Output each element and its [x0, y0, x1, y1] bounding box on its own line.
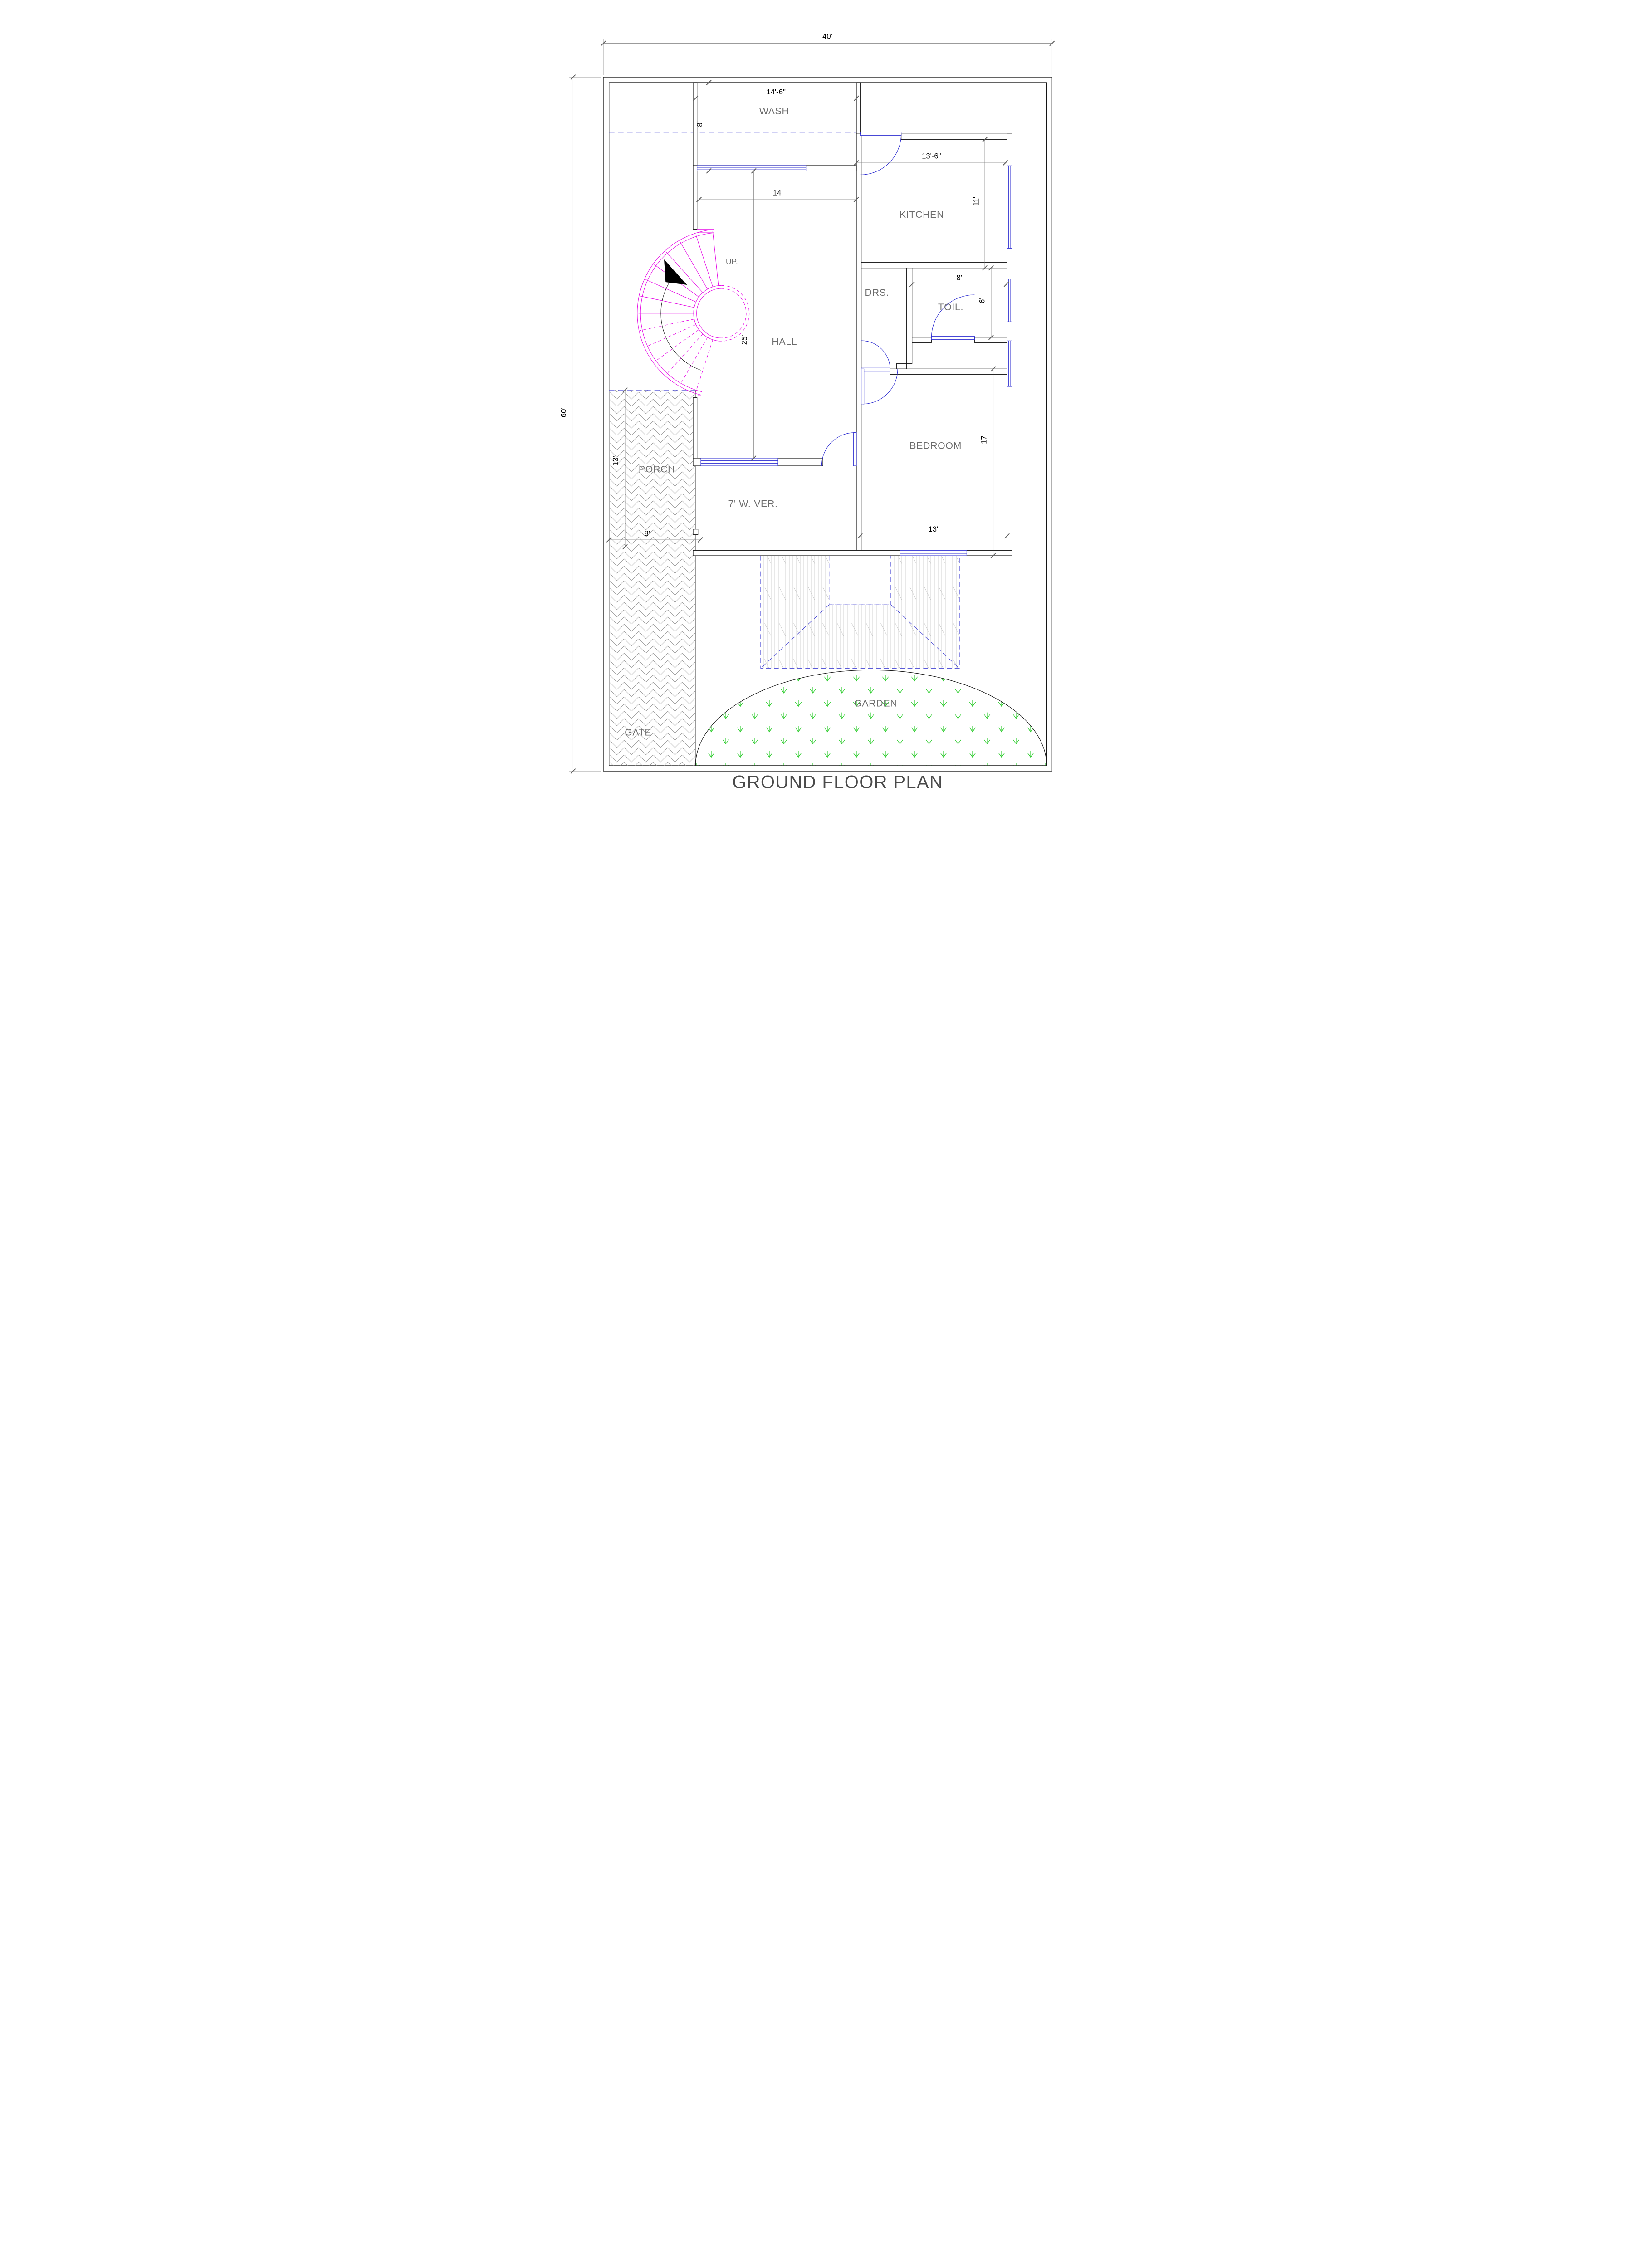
doors	[821, 132, 974, 466]
garden-area	[695, 670, 1046, 766]
window-hall-bottom	[701, 458, 778, 466]
dim-kitchen-depth: 11'	[972, 197, 980, 206]
dim-hall-width: 14'	[773, 189, 783, 197]
dim-toilet-depth: 6'	[978, 298, 987, 303]
room-label-veranda: 7' W. VER.	[728, 498, 777, 509]
stair-outer-arc	[637, 230, 714, 395]
wall-bedroom-top	[890, 369, 1012, 374]
stair-treads-dashed	[640, 319, 713, 392]
wall-kitchen-top	[901, 134, 1012, 139]
door-bedroom	[861, 341, 890, 371]
porch-driveway-paving	[610, 390, 695, 766]
stair-up-arrow	[664, 259, 687, 285]
room-label-toilet: TOIL.	[938, 302, 963, 313]
stair-outer-arc-inner	[640, 233, 714, 392]
stair-up-label: UP.	[726, 257, 738, 266]
dim-porch-depth: 13'	[611, 456, 620, 466]
room-label-drs: DRS.	[865, 287, 890, 298]
window-hall-top	[697, 166, 806, 171]
window-corridor-right	[1007, 341, 1012, 386]
door-kitchen	[861, 132, 901, 175]
dim-bedroom-depth: 17'	[980, 434, 988, 444]
stair-inner-circle-right-dashed	[721, 285, 749, 341]
window-toilet-right	[1007, 279, 1012, 322]
stair-treads-solid	[639, 231, 719, 313]
floor-plan-sheet: 40' 60' 14'-6" 8' 13'-6" 11' 14' 25' 8' …	[544, 0, 1089, 816]
wall-hall-left-upper	[693, 83, 697, 229]
dim-plot-width: 40'	[822, 32, 832, 40]
wall-toil-bottom-left	[912, 337, 932, 343]
dim-porch-width: 8'	[644, 529, 650, 538]
windows	[697, 166, 1012, 556]
room-label-gate: GATE	[625, 727, 651, 738]
wall-drs-toil-divider	[907, 268, 912, 364]
room-label-bedroom: BEDROOM	[909, 440, 962, 451]
stair-top-closer	[697, 230, 714, 233]
window-kitchen-right	[1007, 166, 1012, 248]
room-label-porch: PORCH	[639, 464, 675, 474]
wall-drs-bottom	[897, 363, 907, 369]
dim-plot-height: 60'	[559, 407, 568, 417]
wall-kitchen-bottom	[861, 262, 1012, 268]
dim-toilet-width: 8'	[956, 273, 962, 282]
dim-kitchen-width: 13'-6"	[922, 152, 941, 160]
dim-wash-depth: 8'	[695, 121, 704, 127]
dim-hall-depth: 25'	[740, 335, 749, 345]
dim-bedroom-width: 13'	[928, 525, 938, 533]
window-bedroom-bottom	[900, 550, 967, 556]
drawing-title: GROUND FLOOR PLAN	[732, 772, 943, 792]
ground-floor-plan-drawing: 40' 60' 14'-6" 8' 13'-6" 11' 14' 25' 8' …	[544, 0, 1089, 816]
room-label-hall: HALL	[772, 336, 797, 347]
wall-hall-left-lower	[693, 398, 697, 466]
wall-toil-bottom-right	[974, 337, 1012, 343]
wall-wash-right	[856, 83, 861, 134]
building-walls	[693, 83, 1012, 556]
stair-inner-circle-left	[694, 285, 721, 341]
stair-walkline	[661, 281, 701, 370]
room-label-kitchen: KITCHEN	[900, 209, 944, 220]
dim-wash-width: 14'-6"	[766, 88, 786, 96]
room-label-garden: GARDEN	[854, 698, 897, 709]
wall-spine	[856, 134, 861, 556]
room-label-wash: WASH	[759, 106, 789, 117]
spiral-staircase	[637, 230, 749, 395]
door-veranda	[821, 433, 856, 466]
wall-veranda-step	[693, 529, 698, 535]
roof-projection-hatch	[761, 556, 959, 668]
